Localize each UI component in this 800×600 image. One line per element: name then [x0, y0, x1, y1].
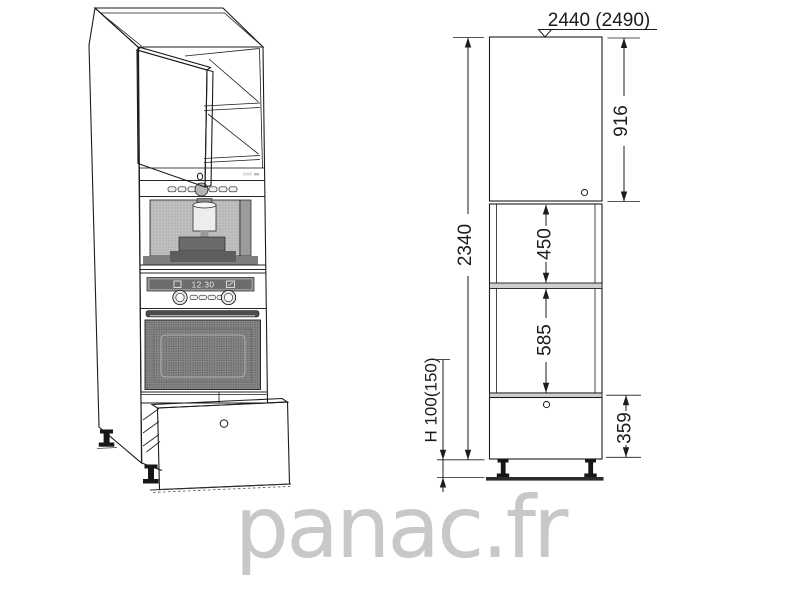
- dimension-359: 359: [606, 395, 641, 457]
- drawer-knob: [220, 420, 228, 428]
- dimension-label-585: 585: [535, 324, 556, 356]
- carcass-shelf-gap: [136, 270, 270, 274]
- foot-front: [143, 479, 159, 484]
- foot-back: [100, 430, 113, 434]
- oven-button: [199, 295, 207, 300]
- coffee-button: [229, 187, 237, 192]
- drawer-slide-rail: [143, 422, 159, 434]
- dimension-label-2340: 2340: [455, 224, 476, 266]
- coffee-button: [209, 187, 217, 192]
- door-top-edge: [137, 48, 211, 71]
- cabinet-technical-drawing: panac.fr: [0, 0, 800, 600]
- elevation-door-panel: [490, 37, 603, 201]
- coffee-cup-stand: [201, 231, 209, 237]
- coffee-drip-tray: [170, 251, 236, 262]
- appliance-stack: 12.30: [136, 168, 270, 403]
- dimension-label-450: 450: [535, 228, 556, 260]
- coffee-button: [178, 187, 186, 192]
- dimension-label-plinth: H 100(150): [422, 357, 441, 442]
- coffee-cup-rim: [193, 202, 216, 208]
- dimension-ceiling-height: 2440 (2490): [539, 10, 658, 37]
- dimension-label-916: 916: [611, 105, 632, 137]
- oven-button: [190, 295, 198, 300]
- oven-knob-left: [176, 293, 184, 301]
- adjustable-feet: [99, 430, 159, 484]
- elevation-ground-line: [486, 477, 604, 481]
- top-panel-edge-line: [101, 13, 263, 46]
- interior-diagonal: [208, 114, 259, 154]
- drawer-front: [158, 402, 290, 490]
- cabinet-side-panel: [89, 8, 142, 463]
- coffee-button: [219, 187, 227, 192]
- technical-drawing-page: panac.fr: [0, 0, 800, 600]
- door-panel: [137, 50, 207, 187]
- coffee-dial: [195, 183, 208, 196]
- coffee-bottom-trim: [136, 265, 270, 270]
- elevation-drawer-knob: [543, 401, 549, 407]
- door-knob: [197, 173, 202, 180]
- dimension-label-ceiling-height: 2440 (2490): [548, 10, 650, 31]
- coffee-drip-pedestal: [179, 237, 225, 251]
- foot-back: [99, 443, 115, 447]
- upper-compartment-interior: [185, 49, 263, 169]
- drawer-slide-rail: [143, 409, 159, 421]
- dimension-450: 450: [535, 205, 556, 283]
- oven-clock: 12.30: [192, 280, 215, 290]
- oven-control-panel: 12.30: [136, 273, 270, 309]
- elevation-drawer-top-edge: [490, 393, 603, 398]
- coffee-display: [254, 173, 259, 176]
- foot-back: [104, 434, 110, 444]
- open-door: [137, 48, 213, 188]
- carcass-rail-band: [136, 392, 270, 403]
- elevation-feet: [497, 459, 597, 478]
- oven-window: [145, 320, 261, 390]
- shelf-edge: [204, 160, 260, 163]
- foot-front: [145, 465, 158, 469]
- dimension-2340: 2340: [437, 38, 485, 460]
- watermark: panac.fr: [235, 478, 569, 578]
- ceiling-level-mark: [539, 30, 552, 38]
- oven-door: [136, 309, 270, 393]
- shelf-edge: [204, 156, 260, 159]
- oven-button: [208, 295, 216, 300]
- perspective-view: 12.30: [89, 8, 291, 492]
- dimension-label-359: 359: [615, 412, 636, 444]
- dimension-916: 916: [608, 38, 641, 202]
- coffee-niche-side: [240, 200, 251, 256]
- dimension-585: 585: [535, 289, 556, 393]
- foot-front: [148, 469, 154, 480]
- elevation-door-knob: [581, 189, 587, 195]
- coffee-machine: [136, 168, 270, 270]
- door-edge: [205, 70, 213, 187]
- interior-diagonal: [209, 59, 259, 102]
- elevation-shelf-divider: [490, 283, 603, 289]
- top-panel-edge-line: [101, 13, 142, 46]
- coffee-button: [168, 187, 176, 192]
- coffee-cup: [193, 205, 216, 231]
- dimensions: 2440 (2490) 916 2340 45: [422, 10, 658, 492]
- open-drawer: [152, 399, 290, 490]
- ground-tick: [97, 448, 117, 449]
- oven-knob-right: [224, 293, 232, 301]
- dimension-plinth-height: H 100(150): [422, 357, 485, 492]
- coffee-display: [243, 173, 252, 176]
- cabinet-top-panel: [95, 8, 263, 47]
